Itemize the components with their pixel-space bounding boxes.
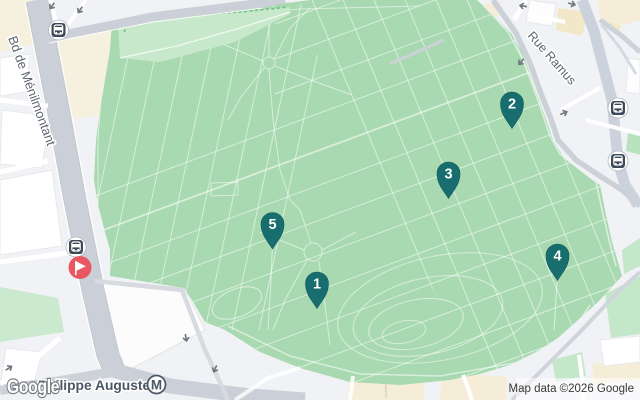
svg-text:M: M: [151, 378, 162, 393]
svg-text:3: 3: [444, 167, 452, 183]
svg-text:4: 4: [553, 249, 561, 265]
svg-text:5: 5: [268, 217, 276, 233]
svg-text:Map data ©2026 Google: Map data ©2026 Google: [509, 383, 634, 395]
svg-text:1: 1: [313, 277, 321, 293]
svg-text:2: 2: [508, 97, 516, 113]
svg-text:Google: Google: [7, 375, 60, 397]
